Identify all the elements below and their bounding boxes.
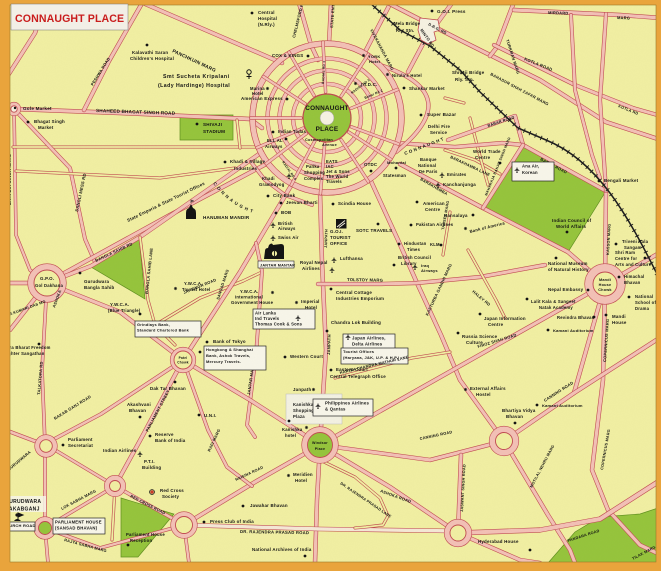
svg-text:CONNAUGHT PLACE: CONNAUGHT PLACE [15, 13, 124, 25]
